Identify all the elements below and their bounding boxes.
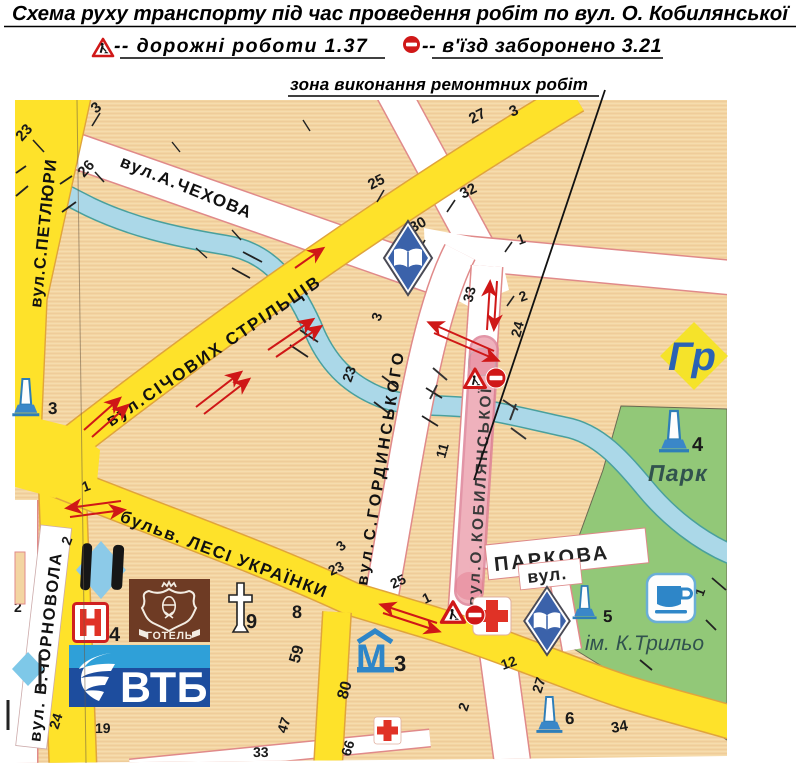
svg-text:4: 4 xyxy=(692,434,704,456)
svg-text:9: 9 xyxy=(246,611,257,633)
svg-text:вул.: вул. xyxy=(526,563,568,587)
svg-text:зона виконання ремонтних робіт: зона виконання ремонтних робіт xyxy=(290,75,588,94)
svg-text:5: 5 xyxy=(603,607,612,626)
svg-text:19: 19 xyxy=(95,720,111,736)
svg-text:6: 6 xyxy=(565,709,574,728)
svg-text:Парк: Парк xyxy=(648,460,708,486)
svg-text:-- в'їзд заборонено 3.21: -- в'їзд заборонено 3.21 xyxy=(422,35,662,57)
svg-text:8: 8 xyxy=(292,602,302,622)
svg-text:Схема руху транспорту під час: Схема руху транспорту під час проведення… xyxy=(12,2,790,25)
svg-text:33: 33 xyxy=(253,744,269,760)
svg-text:-- дорожні роботи 1.37: -- дорожні роботи 1.37 xyxy=(114,35,368,57)
svg-text:3: 3 xyxy=(48,399,57,418)
svg-text:3: 3 xyxy=(394,651,406,676)
svg-text:4: 4 xyxy=(109,624,121,646)
svg-text:ВТБ: ВТБ xyxy=(120,664,208,712)
svg-text:ім. К.Трильо: ім. К.Трильо xyxy=(585,632,704,655)
svg-text:ГОТЕЛЬ: ГОТЕЛЬ xyxy=(146,630,193,642)
svg-text:Гр: Гр xyxy=(668,335,716,379)
